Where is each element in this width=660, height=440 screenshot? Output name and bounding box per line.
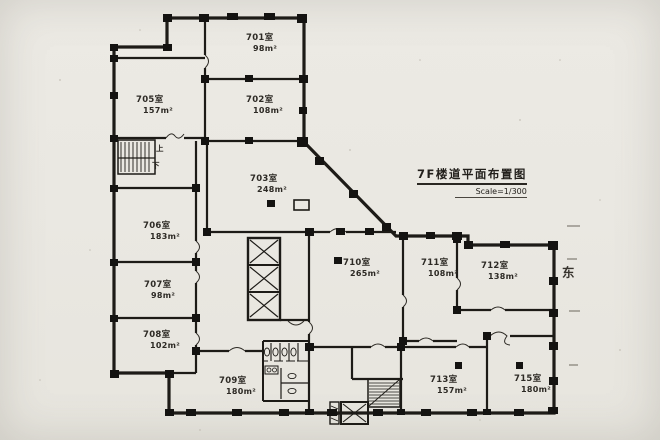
elevator-bank-icon <box>248 238 280 320</box>
room-area: 248m² <box>250 185 287 194</box>
column-marker <box>110 13 558 416</box>
staircase-bottom-icon <box>368 379 400 407</box>
stair-down-label: 下 <box>152 160 160 171</box>
room-area: 157m² <box>136 106 173 115</box>
drawing-scale: Scale=1/300 <box>455 187 527 198</box>
room-area: 102m² <box>143 341 180 350</box>
room-number: 706室 <box>143 222 180 232</box>
room-label-709: 709室 180m² <box>219 377 256 396</box>
washroom-block <box>263 341 309 401</box>
room-area: 180m² <box>514 385 551 394</box>
room-area: 98m² <box>246 44 277 53</box>
east-orientation-label: 东 <box>562 262 575 281</box>
room-number: 708室 <box>143 331 180 341</box>
duct-box-icon <box>294 200 309 210</box>
room-label-705: 705室 157m² <box>136 96 173 115</box>
room-area: 183m² <box>143 232 180 241</box>
room-number: 703室 <box>250 175 287 185</box>
floor-plan-drawing <box>0 0 660 440</box>
room-area: 108m² <box>421 269 458 278</box>
staircase-top-icon <box>118 140 155 174</box>
room-label-707: 707室 98m² <box>144 281 175 300</box>
scan-noise <box>39 29 621 431</box>
room-label-708: 708室 102m² <box>143 331 180 350</box>
room-number: 713室 <box>430 376 467 386</box>
room-label-713: 713室 157m² <box>430 376 467 395</box>
room-label-702: 702室 108m² <box>246 96 283 115</box>
sink-counter-icon <box>265 366 278 374</box>
room-area: 157m² <box>430 386 467 395</box>
room-label-710: 710室 265m² <box>343 259 380 278</box>
room-number: 702室 <box>246 96 283 106</box>
room-area: 138m² <box>481 272 518 281</box>
room-number: 712室 <box>481 262 518 272</box>
room-label-712: 712室 138m² <box>481 262 518 281</box>
room-area: 180m² <box>219 387 256 396</box>
room-number: 715室 <box>514 375 551 385</box>
dimension-tick <box>567 226 580 365</box>
room-label-706: 706室 183m² <box>143 222 180 241</box>
room-number: 711室 <box>421 259 458 269</box>
room-number: 707室 <box>144 281 175 291</box>
room-area: 108m² <box>246 106 283 115</box>
room-number: 709室 <box>219 377 256 387</box>
room-number: 701室 <box>246 34 277 44</box>
room-label-703: 703室 248m² <box>250 175 287 194</box>
drawing-title: 7F楼道平面布置图 <box>417 166 527 185</box>
interior-walls <box>114 18 554 413</box>
room-label-711: 711室 108m² <box>421 259 458 278</box>
room-area: 265m² <box>343 269 380 278</box>
room-area: 98m² <box>144 291 175 300</box>
room-label-701: 701室 98m² <box>246 34 277 53</box>
stair-up-label: 上 <box>156 143 164 154</box>
title-block: 7F楼道平面布置图 Scale=1/300 <box>417 166 527 198</box>
room-number: 710室 <box>343 259 380 269</box>
floor-plan-sheet: 701室 98m² 702室 108m² 703室 248m² 705室 157… <box>0 0 660 440</box>
room-label-715: 715室 180m² <box>514 375 551 394</box>
room-number: 705室 <box>136 96 173 106</box>
